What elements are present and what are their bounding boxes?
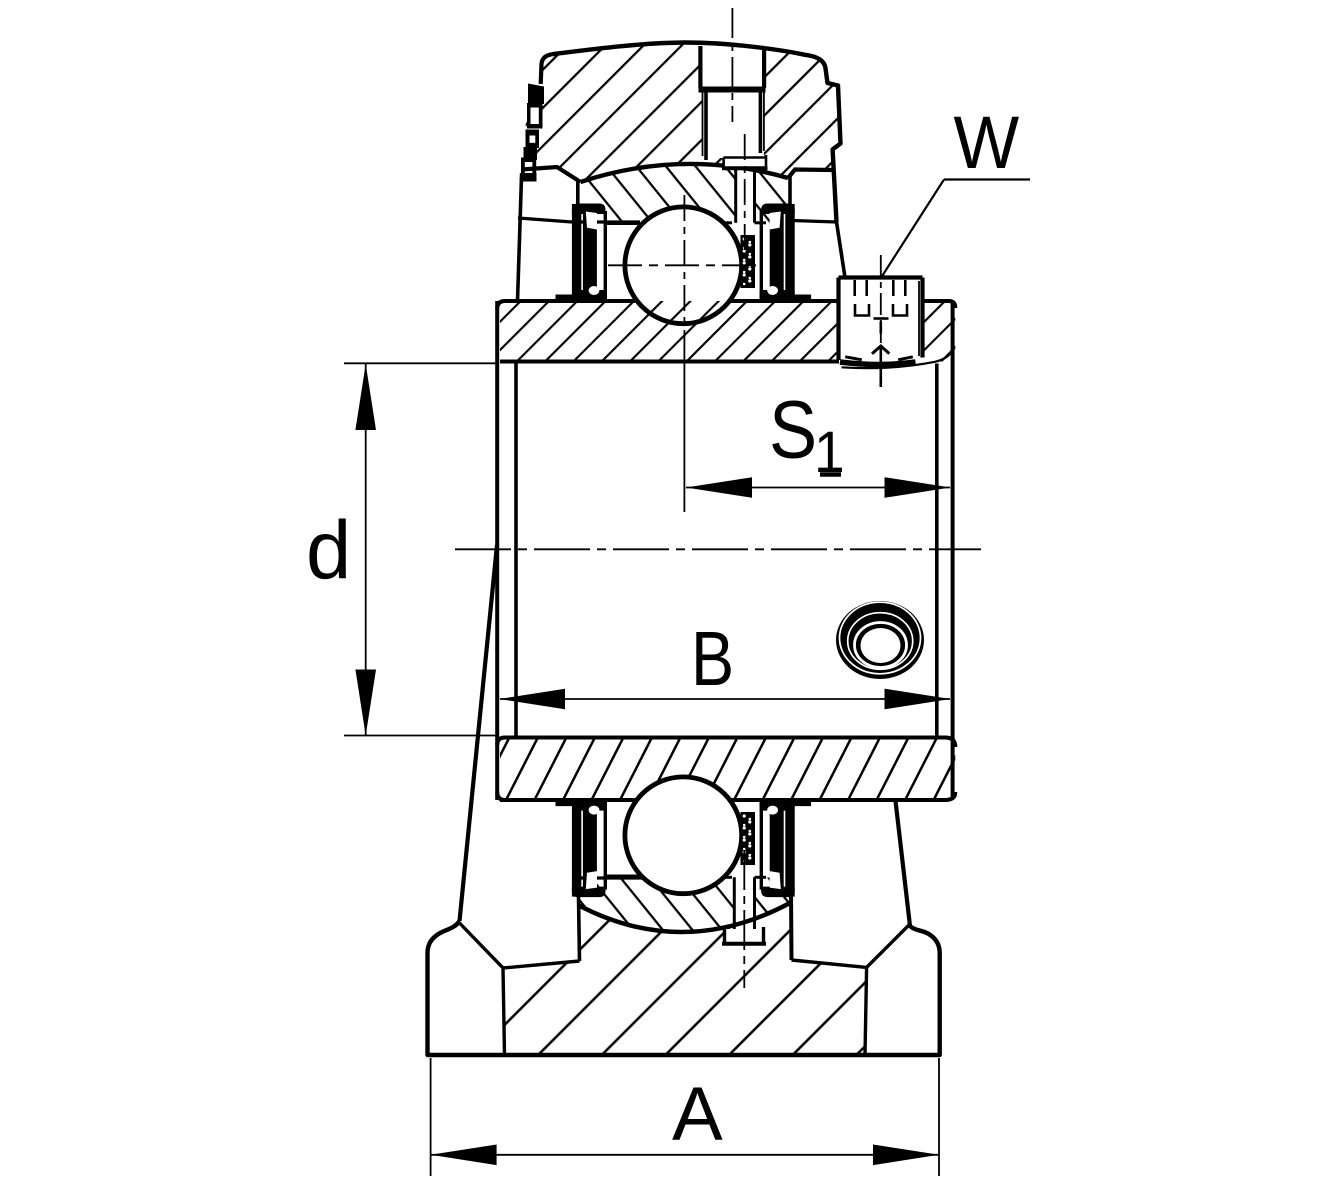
svg-text:A: A	[672, 1072, 723, 1157]
svg-text:d: d	[306, 505, 351, 597]
svg-text:S: S	[769, 384, 817, 475]
svg-text:B: B	[691, 617, 734, 703]
svg-text:W: W	[954, 102, 1020, 184]
